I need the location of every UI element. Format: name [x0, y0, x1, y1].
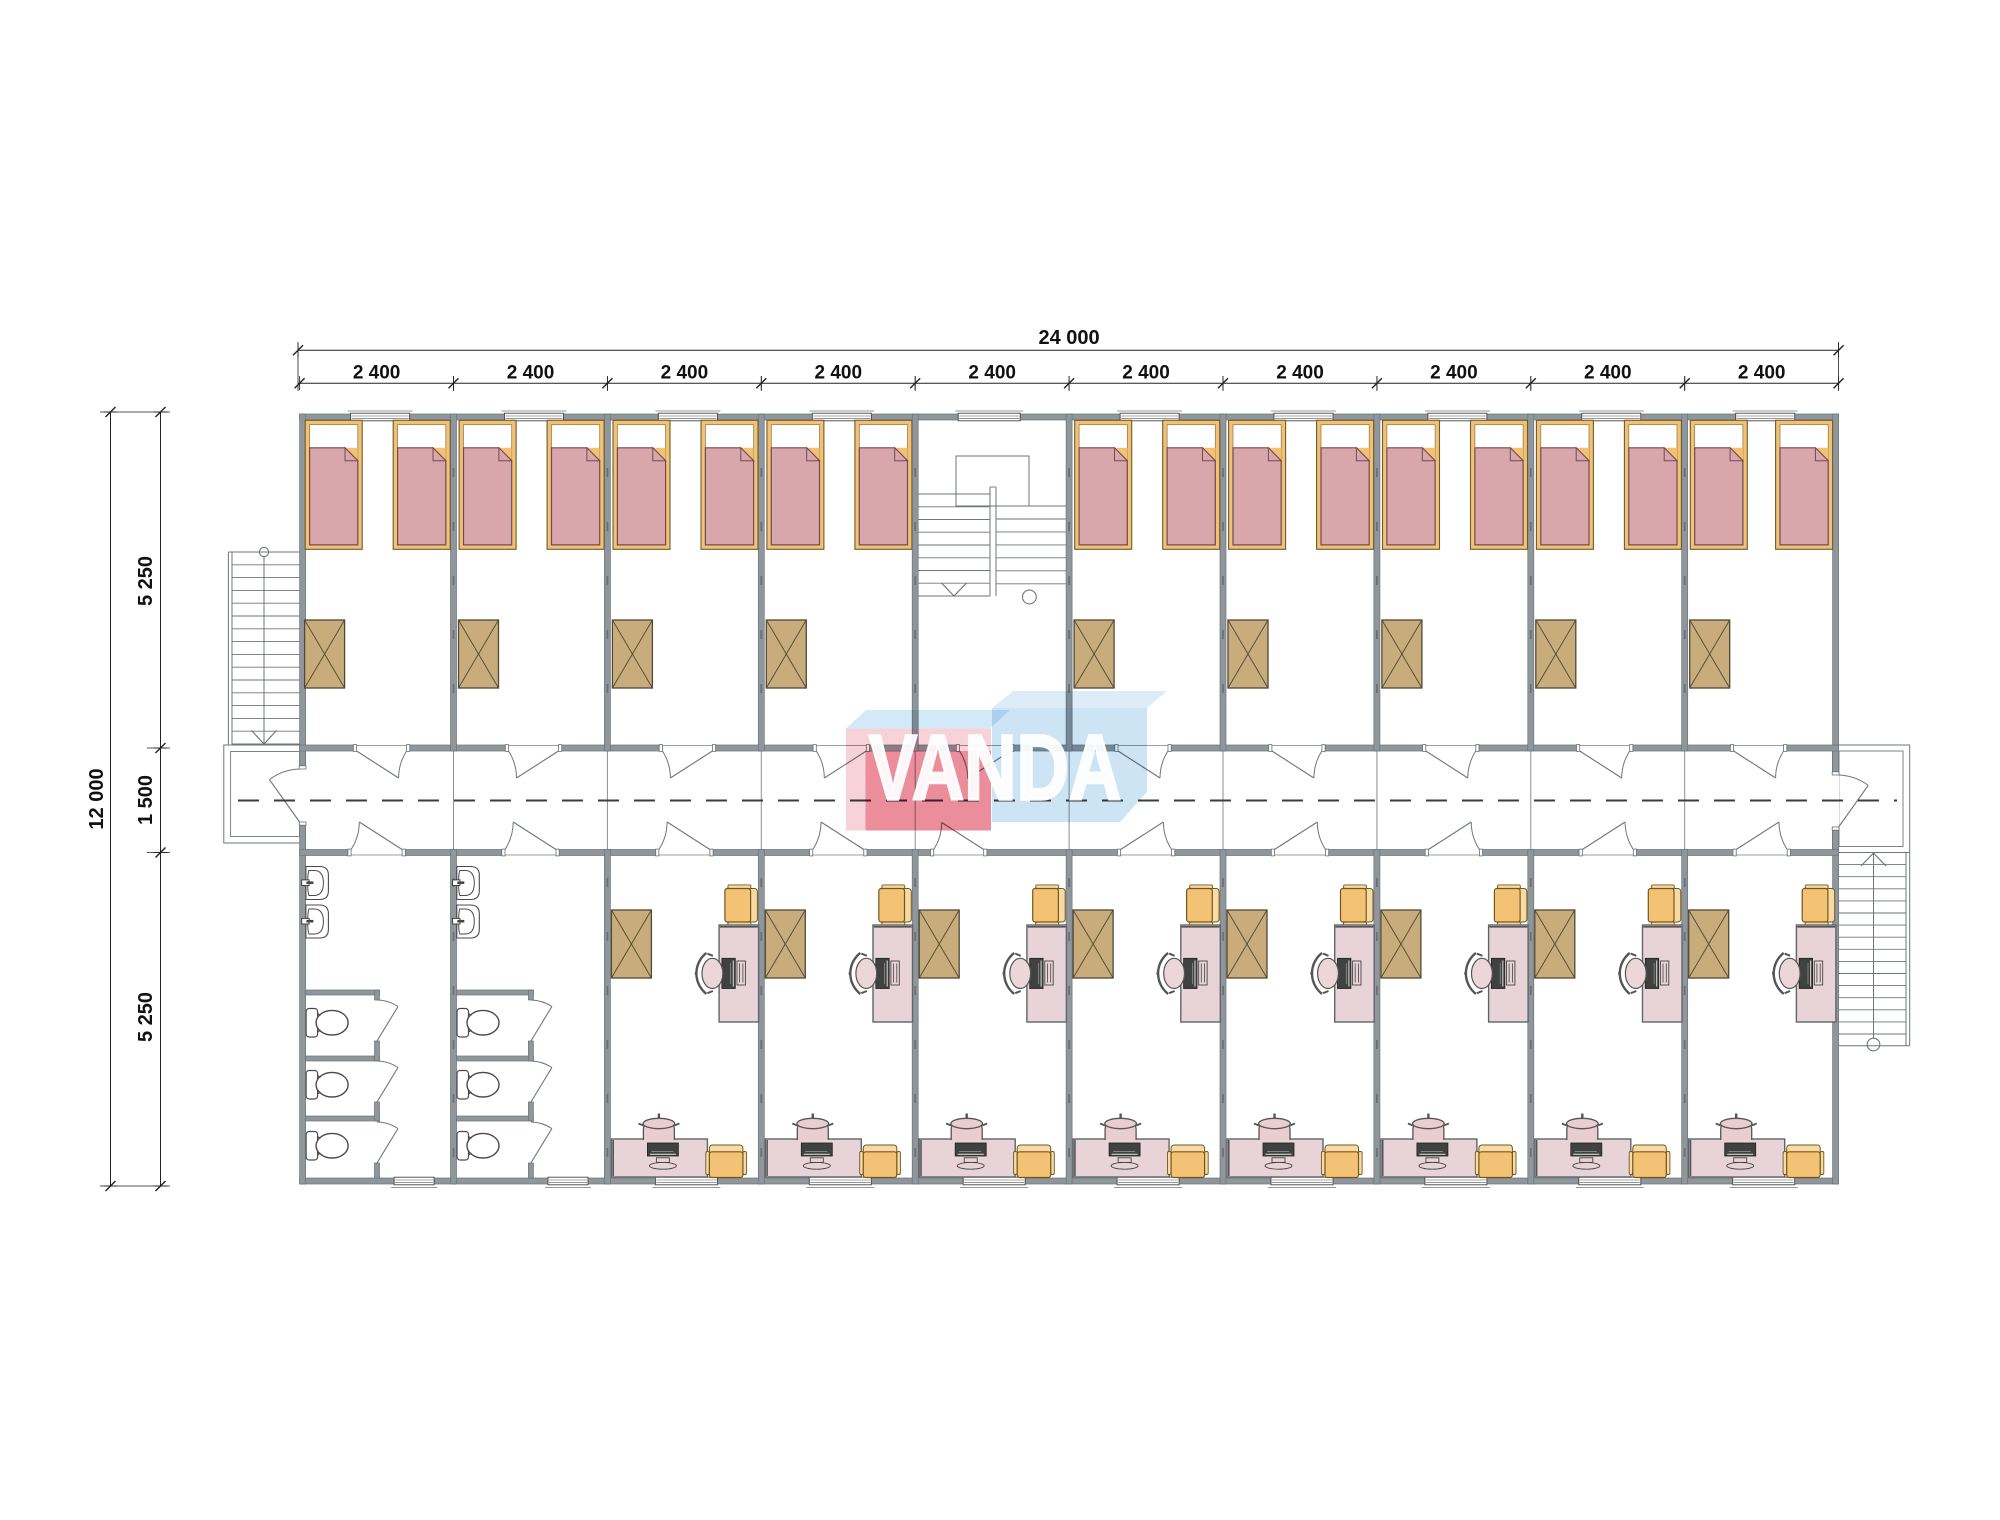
- svg-text:5 250: 5 250: [135, 556, 157, 606]
- svg-text:2 400: 2 400: [661, 363, 709, 384]
- svg-text:VANDA: VANDA: [869, 716, 1121, 820]
- svg-text:24 000: 24 000: [1039, 327, 1100, 349]
- svg-text:1 500: 1 500: [135, 775, 157, 825]
- svg-text:2 400: 2 400: [353, 363, 401, 384]
- svg-text:2 400: 2 400: [1122, 363, 1170, 384]
- svg-text:2 400: 2 400: [968, 363, 1016, 384]
- svg-text:2 400: 2 400: [1584, 363, 1632, 384]
- svg-text:2 400: 2 400: [1276, 363, 1324, 384]
- svg-text:2 400: 2 400: [507, 363, 555, 384]
- svg-text:2 400: 2 400: [1738, 363, 1786, 384]
- svg-text:2 400: 2 400: [815, 363, 863, 384]
- svg-text:5 250: 5 250: [135, 992, 157, 1042]
- svg-text:2 400: 2 400: [1430, 363, 1478, 384]
- svg-text:12 000: 12 000: [86, 768, 108, 829]
